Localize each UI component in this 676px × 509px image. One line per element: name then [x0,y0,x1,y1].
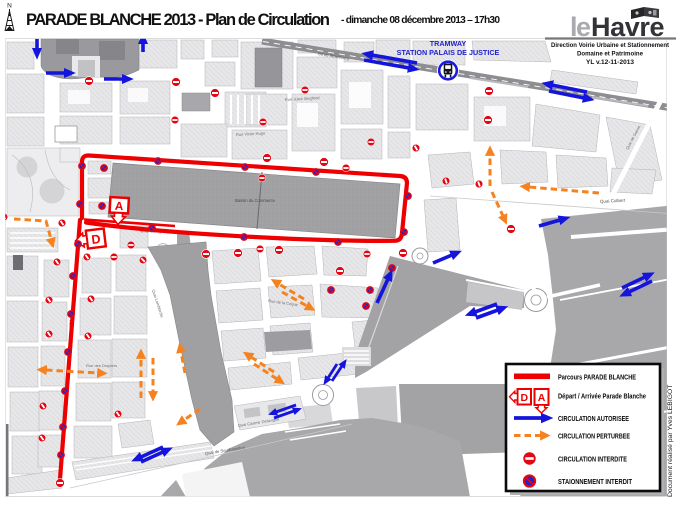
svg-text:PARADE BLANCHE 2013 - Plan de: PARADE BLANCHE 2013 - Plan de Circulatio… [26,11,330,29]
svg-text:Bassin du Commerce: Bassin du Commerce [235,198,276,203]
svg-text:CIRCULATION AUTORISEE: CIRCULATION AUTORISEE [558,416,629,423]
svg-text:TRAMWAY: TRAMWAY [430,39,467,48]
svg-text:YL v.12-11-2013: YL v.12-11-2013 [586,59,634,66]
svg-text:Direction Voirie Urbaine et St: Direction Voirie Urbaine et Stationnemen… [551,42,670,49]
svg-text:D: D [521,392,529,404]
svg-text:A: A [115,199,125,213]
svg-text:CIRCULATION PERTURBEE: CIRCULATION PERTURBEE [558,434,630,441]
svg-text:D: D [91,232,102,247]
svg-text:CIRCULATION INTERDITE: CIRCULATION INTERDITE [558,457,627,464]
svg-text:STATION PALAIS DE JUSTICE: STATION PALAIS DE JUSTICE [397,48,500,57]
svg-text:- dimanche 08 décembre 2013 –: - dimanche 08 décembre 2013 – 17h30 [341,15,500,26]
svg-text:STAIONNEMENT INTERDIT: STAIONNEMENT INTERDIT [558,479,633,486]
svg-text:Départ / Arrivée Parade Blanch: Départ / Arrivée Parade Blanche [558,394,646,401]
svg-text:N: N [7,3,12,10]
svg-text:A: A [538,392,546,404]
svg-text:Parcours PARADE BLANCHE: Parcours PARADE BLANCHE [558,375,636,382]
svg-text:Rue des Drapiers: Rue des Drapiers [86,363,117,368]
svg-text:Domaine et Patrimoine: Domaine et Patrimoine [577,51,643,58]
svg-text:Document réalisé par Yves LEBI: Document réalisé par Yves LEBIGOT [667,385,674,497]
